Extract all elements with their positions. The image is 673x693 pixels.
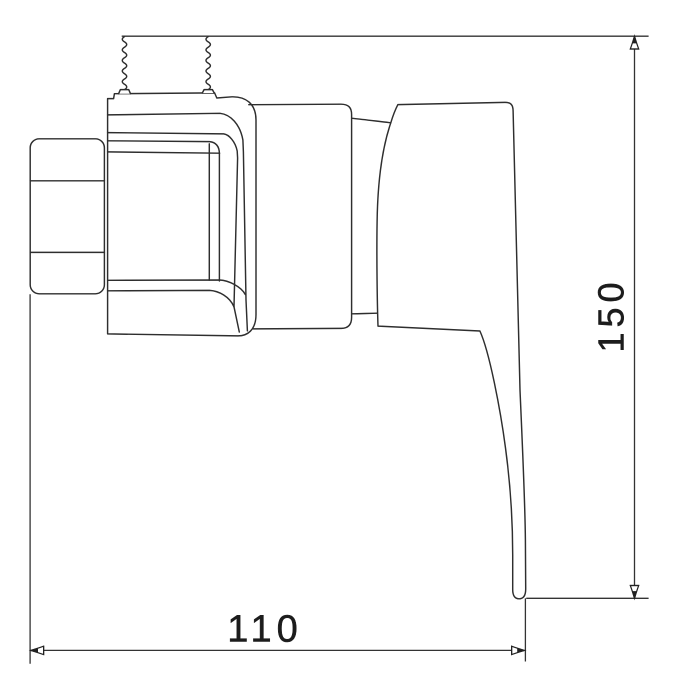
svg-text:150: 150 — [590, 277, 631, 352]
svg-text:110: 110 — [227, 609, 303, 651]
